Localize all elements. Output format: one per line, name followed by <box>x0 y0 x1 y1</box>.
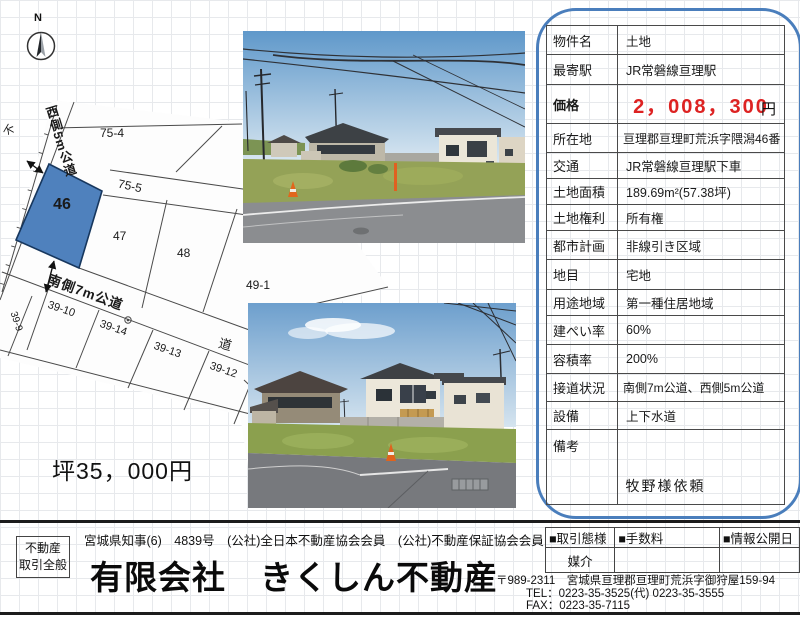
compass-icon <box>28 32 55 60</box>
phone-number: TEL：0223-35-3525(代) 0223-35-3555 <box>526 588 775 601</box>
row-label: 最寄駅 <box>547 55 618 84</box>
property-info-table: 物件名土地 最寄駅JR常磐線亘理駅 価格 2，008，300 円 所在地亘理郡亘… <box>546 25 785 505</box>
row-label: 交通 <box>547 153 618 178</box>
license-badge-line1: 不動産 <box>25 540 61 557</box>
compass-north-label: N <box>34 12 42 24</box>
price-value: 2，008，300 <box>633 90 769 119</box>
parcel-label-75-4: 75-4 <box>100 126 124 140</box>
tsubo-unit-price: 坪35，000円 <box>52 452 193 486</box>
row-label: 設備 <box>547 402 618 429</box>
property-photo-bottom <box>248 303 516 508</box>
contact-block: 〒989-2311 宮城県亘理郡亘理町荒浜字御狩屋159-94 TEL：0223… <box>496 575 775 613</box>
row-label: 土地権利 <box>547 205 618 230</box>
parcel-label-49-1: 49-1 <box>246 278 270 292</box>
row-value: 第一種住居地域 <box>618 290 784 315</box>
license-text: 宮城県知事(6) 4839号 (公社)全日本不動産協会会員 (公社)不動産保証協… <box>84 530 544 549</box>
row-value: 土地 <box>618 26 784 54</box>
deal-header-fee: ■手数料 <box>615 528 720 548</box>
license-badge-line2: 取引全般 <box>19 557 67 574</box>
deal-type-table: ■取引態様 ■手数料 ■情報公開日 媒介 <box>545 527 800 573</box>
row-label: 都市計画 <box>547 231 618 259</box>
row-label: 土地面積 <box>547 179 618 204</box>
row-label: 地目 <box>547 260 618 289</box>
deal-header-published: ■情報公開日 <box>719 528 799 548</box>
row-value: 200% <box>618 345 784 373</box>
parcel-label-48: 48 <box>177 246 190 260</box>
property-photo-top <box>243 31 525 243</box>
price-label: 価格 <box>547 85 618 123</box>
parcel-label-47: 47 <box>113 229 126 243</box>
deal-value-fee <box>615 548 720 573</box>
row-value: JR常磐線亘理駅 <box>618 55 784 84</box>
footer-margin <box>0 615 800 634</box>
company-name: 有限会社 きくしん不動産 <box>90 551 498 599</box>
row-value: 189.69m²(57.38坪) <box>618 179 784 204</box>
row-value: 非線引き区域 <box>618 231 784 259</box>
row-label: 接道状況 <box>547 374 618 401</box>
license-badge: 不動産 取引全般 <box>16 536 70 578</box>
deal-value-type: 媒介 <box>546 548 615 573</box>
row-value: 上下水道 <box>618 402 784 429</box>
row-value: 亘理郡亘理町荒浜字隈潟46番 <box>618 124 784 152</box>
row-label: 用途地域 <box>547 290 618 315</box>
row-value: 南側7m公道、西側5m公道 <box>618 374 784 401</box>
row-value: 宅地 <box>618 260 784 289</box>
row-label: 容積率 <box>547 345 618 373</box>
fax-number: FAX：0223-35-7115 <box>526 600 775 613</box>
row-label: 物件名 <box>547 26 618 54</box>
deal-header-type: ■取引態様 <box>546 528 615 548</box>
remarks-note: 牧野様依頼 <box>547 476 784 496</box>
deal-value-published <box>719 548 799 573</box>
row-value: 60% <box>618 316 784 344</box>
price-cell: 2，008，300 円 <box>618 85 784 123</box>
row-label: 建ぺい率 <box>547 316 618 344</box>
postal-address: 〒989-2311 宮城県亘理郡亘理町荒浜字御狩屋159-94 <box>496 575 775 588</box>
price-unit: 円 <box>761 98 776 119</box>
flyer-page: N 75-4 75-5 47 48 49-1 39-10 39-14 39-13… <box>0 0 800 634</box>
row-label: 所在地 <box>547 124 618 152</box>
row-value: 所有権 <box>618 205 784 230</box>
subject-parcel-number: 46 <box>47 196 77 214</box>
footer-top-rule <box>0 520 800 523</box>
row-value: JR常磐線亘理駅下車 <box>618 153 784 178</box>
